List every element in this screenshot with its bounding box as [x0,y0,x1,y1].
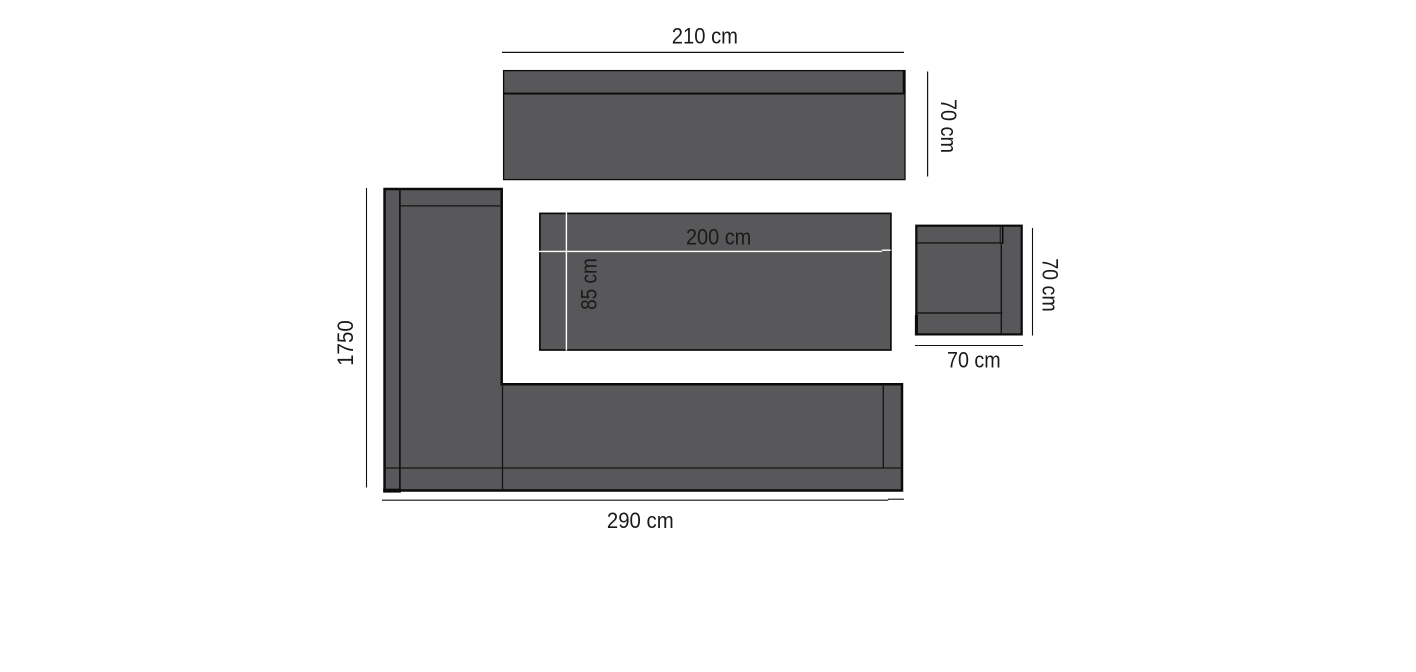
svg-text:200 cm: 200 cm [686,224,751,249]
svg-text:70 cm: 70 cm [947,348,1001,373]
svg-text:210 cm: 210 cm [672,23,738,48]
svg-text:1750: 1750 [333,320,358,366]
svg-text:85 cm: 85 cm [576,258,601,310]
svg-text:70 cm: 70 cm [936,99,961,153]
svg-text:290 cm: 290 cm [607,508,674,533]
svg-text:70 cm: 70 cm [1038,258,1063,312]
